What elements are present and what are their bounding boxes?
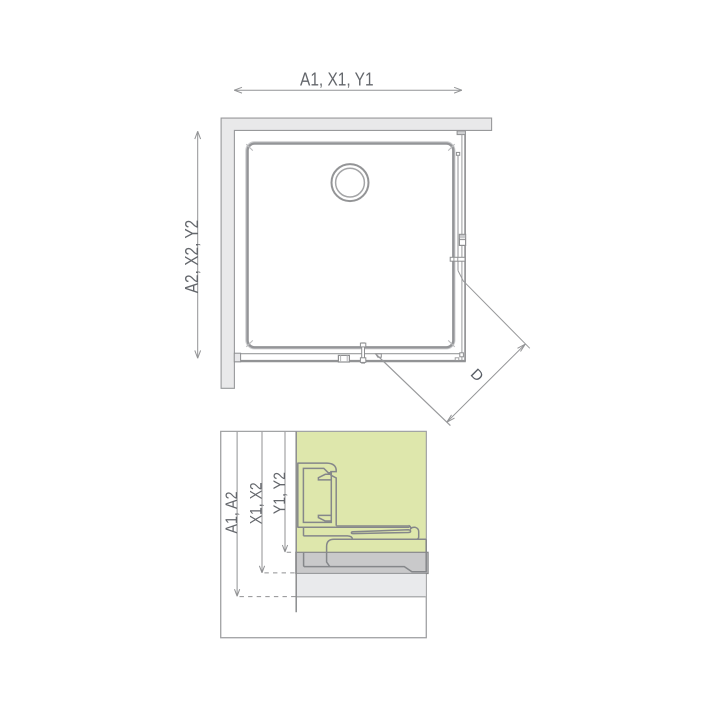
svg-text:Y1, Y2: Y1, Y2: [270, 472, 289, 514]
svg-text:A1, A2: A1, A2: [222, 492, 241, 534]
svg-text:A2, X2, Y2: A2, X2, Y2: [181, 220, 202, 294]
svg-text:A1, X1, Y1: A1, X1, Y1: [300, 68, 374, 89]
svg-text:X1, X2: X1, X2: [247, 482, 266, 524]
